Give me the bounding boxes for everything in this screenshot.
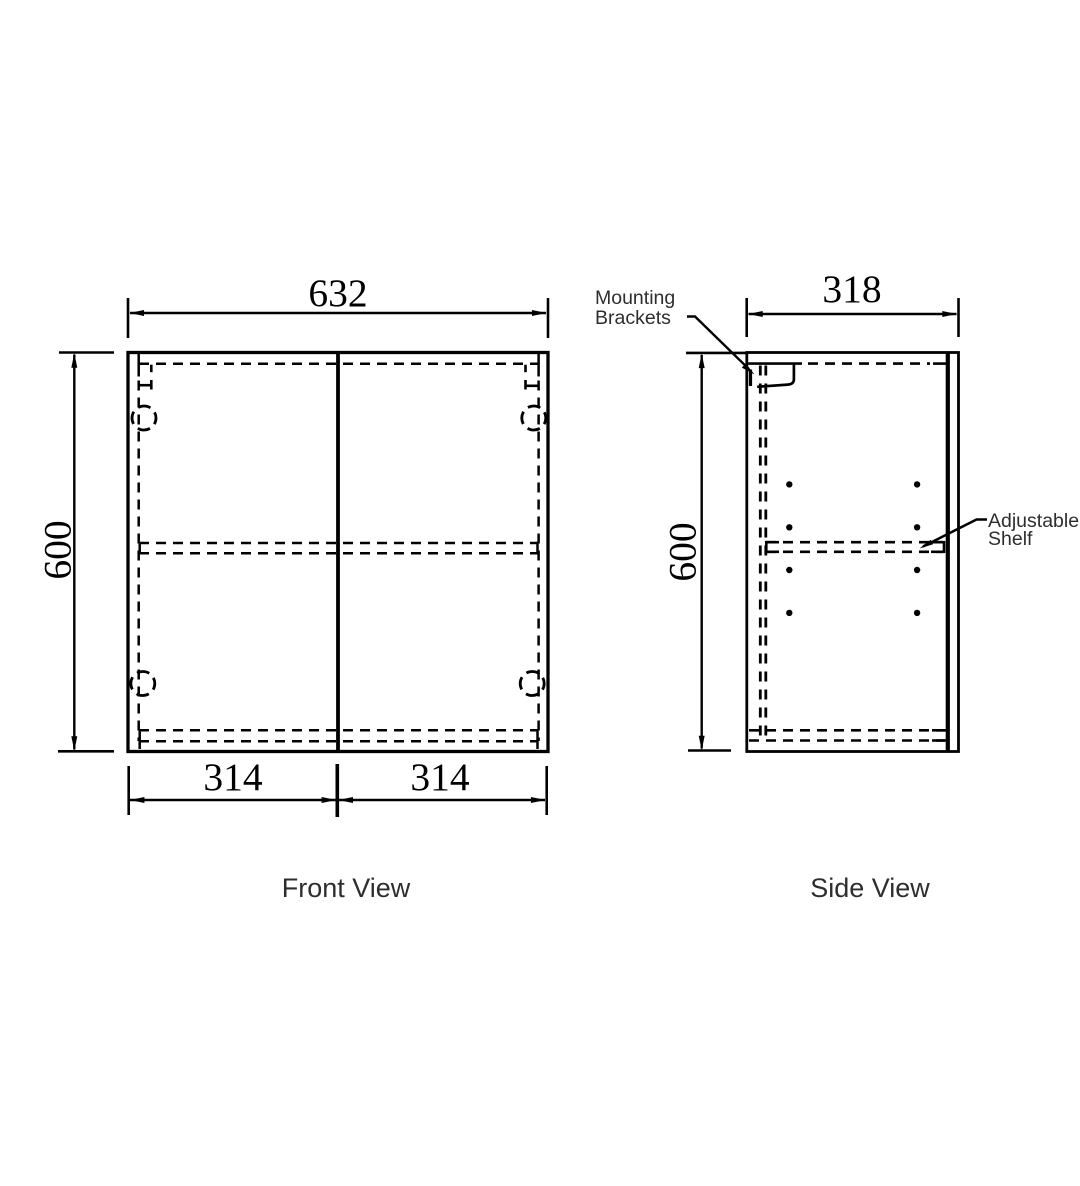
svg-text:Side View: Side View bbox=[810, 873, 930, 903]
svg-text:600: 600 bbox=[661, 522, 705, 581]
svg-text:Front View: Front View bbox=[282, 873, 411, 903]
svg-text:600: 600 bbox=[36, 520, 80, 579]
svg-text:632: 632 bbox=[308, 271, 367, 315]
svg-text:318: 318 bbox=[822, 267, 881, 311]
svg-text:314: 314 bbox=[203, 755, 263, 799]
svg-text:MountingBrackets: MountingBrackets bbox=[595, 287, 675, 329]
svg-text:314: 314 bbox=[410, 755, 470, 799]
